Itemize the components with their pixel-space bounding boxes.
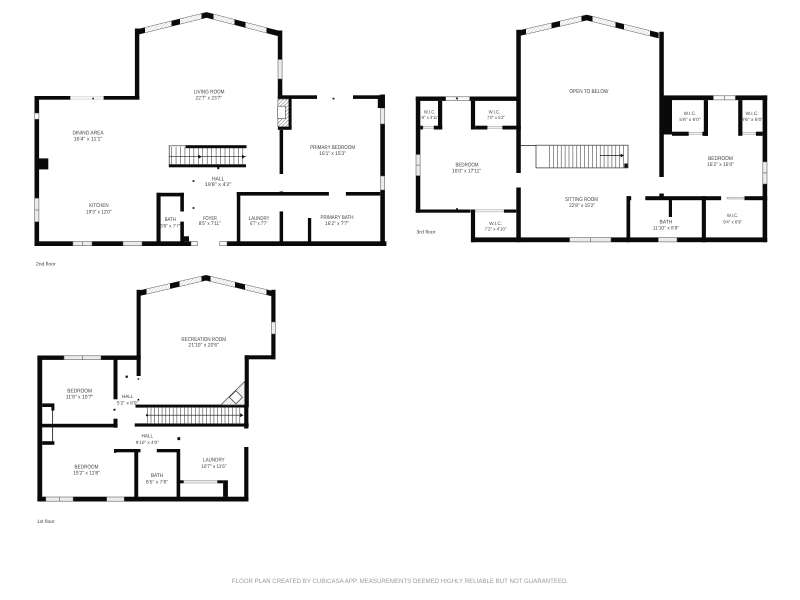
svg-text:11'9" x 10'7": 11'9" x 10'7": [66, 394, 94, 400]
svg-text:3'6" x 6'0": 3'6" x 6'0": [741, 117, 763, 122]
svg-text:HALL: HALL: [142, 434, 154, 440]
svg-text:21'10" x 20'6": 21'10" x 20'6": [188, 343, 219, 349]
svg-text:HALL: HALL: [122, 394, 134, 400]
svg-text:22'8" x 15'2": 22'8" x 15'2": [569, 203, 595, 209]
svg-text:1'6" x 4'11": 1'6" x 4'11": [419, 115, 439, 120]
svg-text:KITCHEN: KITCHEN: [89, 203, 109, 209]
svg-text:SITTING ROOM: SITTING ROOM: [565, 197, 598, 203]
svg-text:19'8" x 4'2": 19'8" x 4'2": [205, 182, 232, 188]
svg-text:BATH: BATH: [165, 217, 177, 223]
svg-text:LAUNDRY: LAUNDRY: [203, 457, 225, 463]
svg-text:10'7" x 11'6": 10'7" x 11'6": [201, 464, 226, 470]
svg-text:7'2" x 4'10": 7'2" x 4'10": [485, 226, 507, 231]
svg-text:LIVING ROOM: LIVING ROOM: [194, 89, 225, 95]
svg-text:2nd floor: 2nd floor: [36, 261, 56, 267]
svg-text:1st floor: 1st floor: [37, 519, 55, 525]
svg-text:5'2" x 8'0": 5'2" x 8'0": [117, 400, 139, 405]
svg-text:16'4" x 11'1": 16'4" x 11'1": [74, 136, 103, 142]
svg-text:8'5" x 7'11": 8'5" x 7'11": [199, 221, 221, 227]
svg-text:BATH: BATH: [660, 219, 673, 225]
svg-text:OPEN TO BELOW: OPEN TO BELOW: [569, 89, 609, 95]
svg-text:9'4" x 6'9": 9'4" x 6'9": [723, 220, 742, 225]
svg-text:PRIMARY BEDROOM: PRIMARY BEDROOM: [310, 145, 355, 151]
svg-text:FLOOR PLAN CREATED BY CUBICASA: FLOOR PLAN CREATED BY CUBICASA APP. MEAS…: [232, 578, 569, 585]
svg-text:16'2" x 16'0": 16'2" x 16'0": [707, 162, 734, 168]
svg-text:5'8" x 6'0": 5'8" x 6'0": [679, 117, 701, 122]
svg-text:22'7" x 23'7": 22'7" x 23'7": [196, 96, 223, 102]
svg-text:BATH: BATH: [151, 473, 163, 479]
svg-text:9'10" x 4'0": 9'10" x 4'0": [136, 440, 159, 445]
svg-text:W.I.C.: W.I.C.: [746, 111, 759, 117]
svg-text:11'10" x 6'9": 11'10" x 6'9": [653, 226, 680, 232]
svg-text:BEDROOM: BEDROOM: [75, 464, 99, 470]
svg-text:7'0" x 5'2": 7'0" x 5'2": [487, 115, 505, 120]
svg-text:15'2" x 11'8": 15'2" x 11'8": [73, 471, 100, 477]
svg-text:6'7" x 7'7": 6'7" x 7'7": [250, 221, 268, 227]
svg-text:W.I.C.: W.I.C.: [684, 111, 697, 117]
svg-text:19'3" x 12'0": 19'3" x 12'0": [86, 209, 112, 215]
svg-text:16'2" x 7'7": 16'2" x 7'7": [325, 221, 349, 227]
svg-text:6'5" x 7'6": 6'5" x 7'6": [146, 480, 169, 486]
svg-text:3rd floor: 3rd floor: [416, 229, 436, 235]
svg-text:3'6" x 7'7": 3'6" x 7'7": [160, 224, 180, 230]
svg-text:W.I.C.: W.I.C.: [727, 213, 738, 219]
svg-text:16'1" x 15'3": 16'1" x 15'3": [319, 151, 346, 157]
svg-text:16'0" x 17'11": 16'0" x 17'11": [452, 168, 481, 174]
